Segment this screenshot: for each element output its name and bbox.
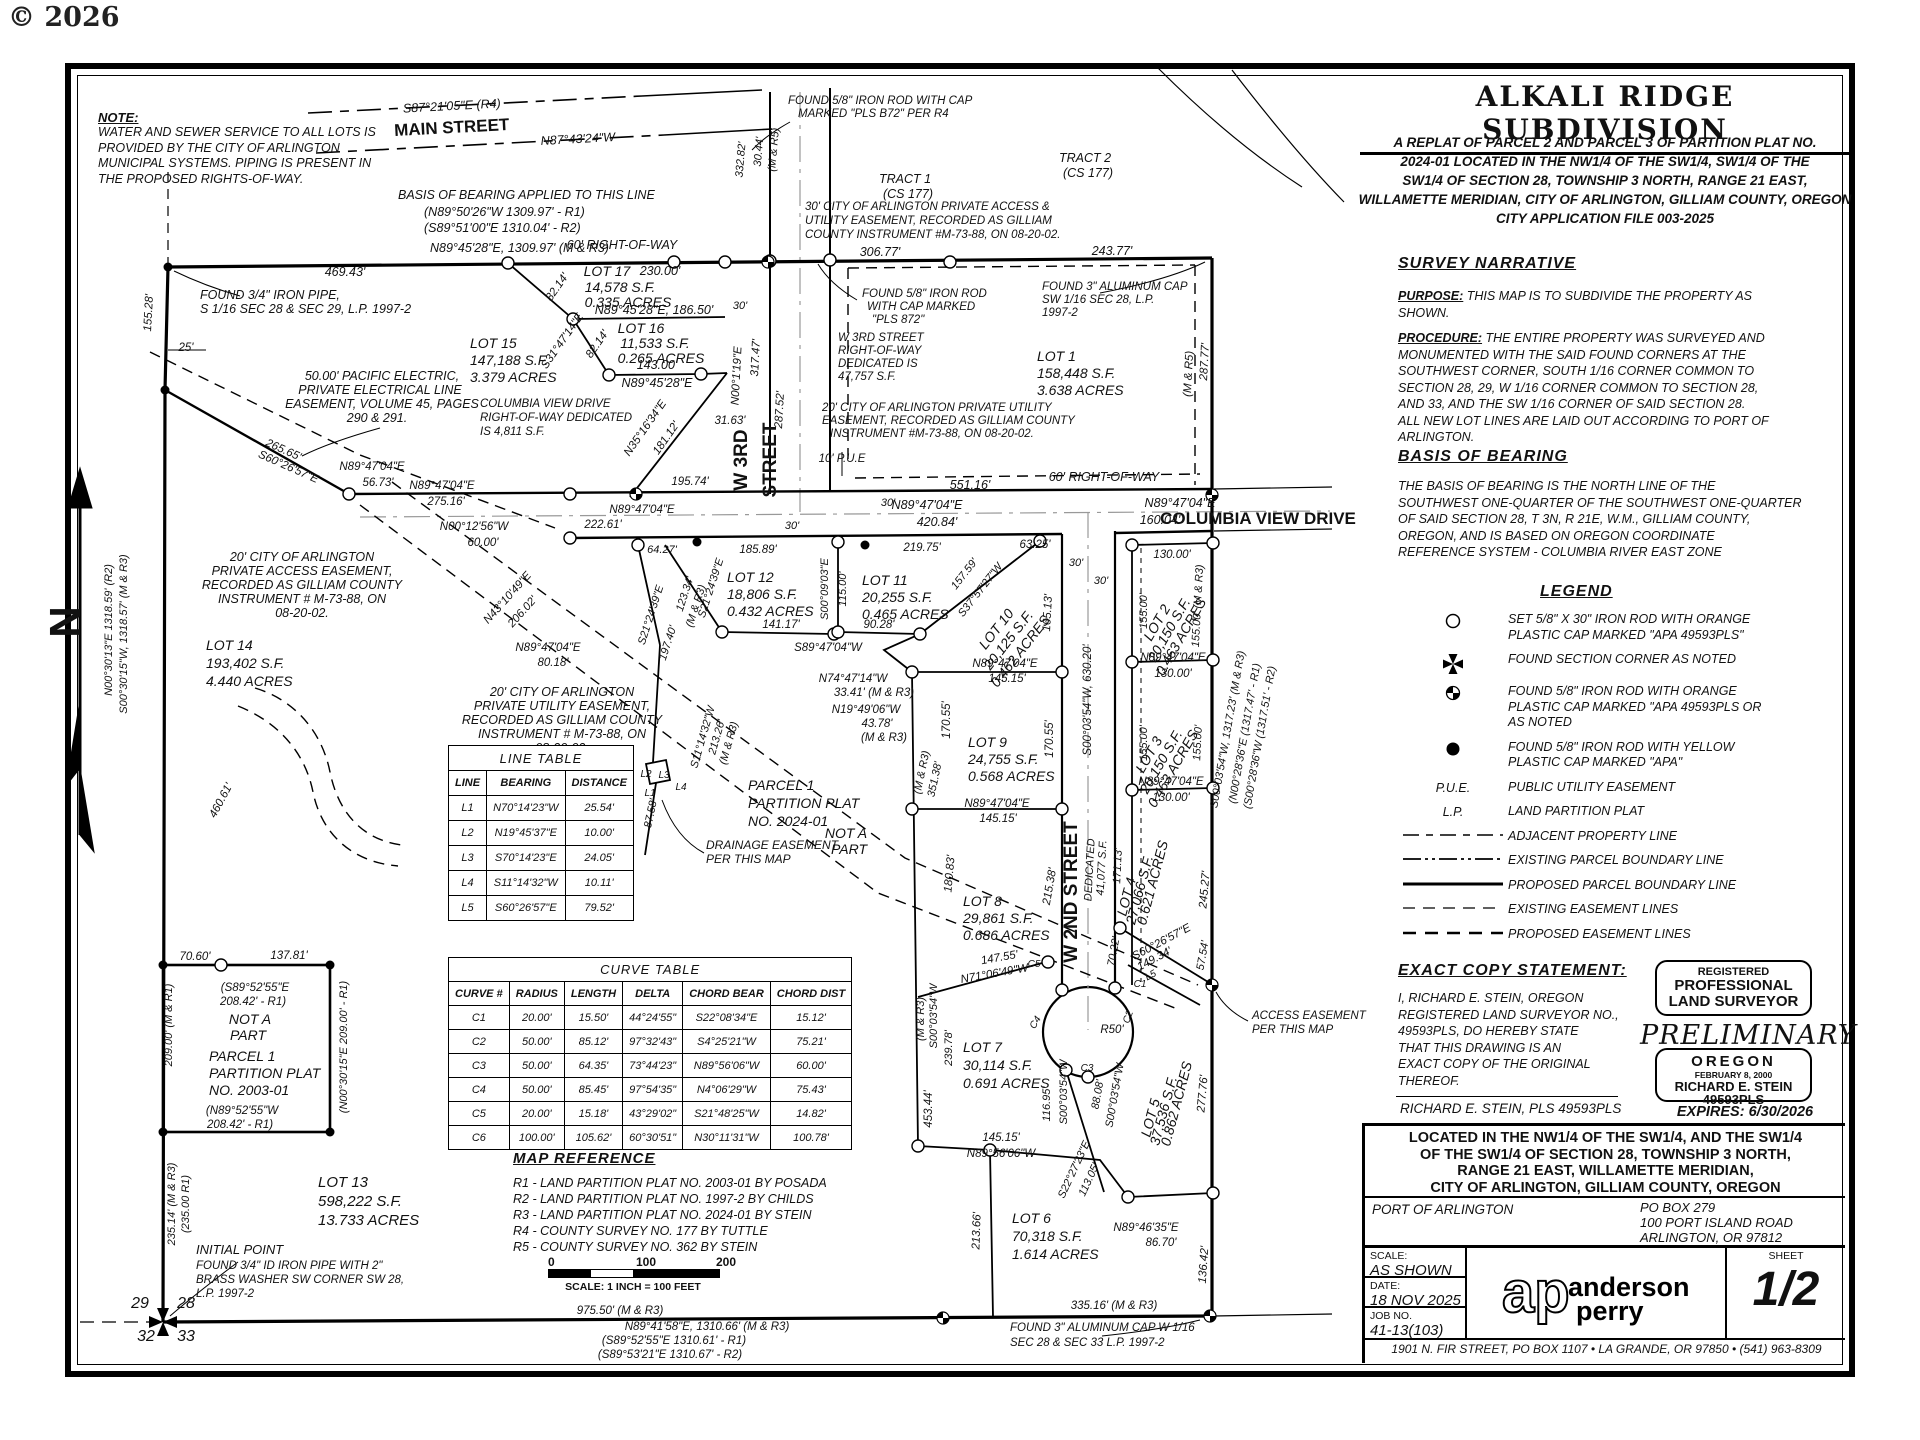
map-annotation: RECORDED AS GILLIAM COUNTY (462, 713, 664, 727)
map-annotation: 170.55' (941, 701, 953, 739)
table-title: CURVE TABLE (449, 958, 852, 982)
map-annotation: PRIVATE UTILITY EASEMENT, (474, 699, 650, 713)
map-annotation: 145.15' (982, 1132, 1020, 1144)
basis-of-bearing-paragraph: THE BASIS OF BEARING IS THE NORTH LINE O… (1398, 478, 1868, 561)
map-annotation: C2 (1121, 1009, 1136, 1025)
map-annotation: 30' (733, 300, 748, 312)
map-annotation: N89°47'04"E (1138, 776, 1204, 788)
map-annotation: COUNTY INSTRUMENT #M-73-88, ON 08-20-02. (805, 229, 1060, 241)
table-header: RADIUS (509, 982, 564, 1006)
procedure-label: PROCEDURE: (1398, 331, 1482, 345)
map-annotation: EASEMENT, VOLUME 45, PAGES (285, 397, 479, 411)
map-annotation: N89°56'06"W (967, 1148, 1037, 1160)
scale-bar-graphic (548, 1269, 720, 1278)
map-annotation: 08-20-02. (275, 606, 329, 620)
titleblock-client: PORT OF ARLINGTON (1372, 1202, 1513, 1217)
map-annotation: INSTRUMENT # M-73-88, ON (478, 727, 647, 741)
map-annotation: N89°47'04"E (892, 498, 964, 512)
map-annotation: S89°47'04"W (794, 642, 863, 654)
legend-item-found-rod-orange: FOUND 5/8" IRON ROD WITH ORANGE PLASTIC … (1398, 684, 1858, 731)
lot-17-label: LOT 17 (584, 263, 632, 279)
map-annotation: 332.82' (733, 141, 748, 179)
map-annotation: FOUND 3/4" ID IRON PIPE WITH 2" (196, 1260, 383, 1272)
lot-8-label: LOT 8 (963, 893, 1002, 909)
map-annotation: (CS 177) (1063, 166, 1113, 180)
map-annotation: 70.22' (1106, 935, 1123, 967)
map-annotation: S00°03'54"W, 630.20' (1082, 644, 1094, 756)
proposed-parcel-line-icon (1398, 878, 1508, 889)
map-annotation: NOT A (825, 825, 867, 841)
map-annotation: N74°47'14"W (819, 673, 889, 685)
map-annotation: S00°03'54"W (928, 982, 940, 1048)
map-annotation: INSTRUMENT #M-73-88, ON 08-20-02. (830, 428, 1034, 440)
map-reference-heading: MAP REFERENCE (513, 1150, 827, 1167)
map-annotation: PART (831, 841, 868, 857)
map-annotation: 0.432 ACRES (727, 603, 814, 619)
map-annotation: 14,578 S.F. (585, 279, 656, 295)
existing-easement-line-icon (1398, 902, 1508, 913)
map-annotation: 460.61' (207, 781, 236, 820)
map-annotation: (M & R3) (915, 997, 927, 1041)
titleblock-job: JOB NO. 41-13(103) (1370, 1310, 1443, 1339)
map-annotation: L2 (640, 769, 652, 780)
scale-100: 100 (636, 1255, 656, 1269)
map-annotation: N89°47'04"E (1140, 652, 1206, 664)
legend-item-lp: L.P. LAND PARTITION PLAT (1398, 804, 1858, 820)
map-reference-item: R4 - COUNTY SURVEY NO. 177 BY TUTTLE (513, 1223, 827, 1239)
map-annotation: UTILITY EASEMENT, RECORDED AS GILLIAM (805, 215, 1052, 227)
street-label-main: MAIN STREET (394, 115, 511, 140)
map-annotation: 136.42' (1197, 1245, 1212, 1284)
found-rod-yellow-icon (1398, 740, 1508, 757)
map-annotation: 20' CITY OF ARLINGTON (489, 685, 635, 699)
map-annotation: 0.691 ACRES (963, 1075, 1050, 1091)
map-annotation: 598,222 S.F. (318, 1193, 402, 1210)
map-annotation: 33 (177, 1328, 195, 1345)
map-annotation: 208.42' - R1) (206, 1119, 273, 1131)
adjacent-line-southeast (1214, 1314, 1332, 1316)
exact-copy-paragraph: I, RICHARD E. STEIN, OREGON REGISTERED L… (1398, 990, 1658, 1089)
firm-address: 1901 N. FIR STREET, PO BOX 1107 • LA GRA… (1368, 1342, 1845, 1356)
legend-item-existing-easement-line: EXISTING EASEMENT LINES (1398, 902, 1858, 918)
logo-ap-glyph: ap (1502, 1260, 1570, 1325)
map-reference: MAP REFERENCE R1 - LAND PARTITION PLAT N… (513, 1150, 827, 1255)
titleblock-border (1362, 1123, 1365, 1363)
map-annotation: (M & R5) (766, 127, 782, 172)
map-annotation: 29 (130, 1295, 149, 1312)
map-annotation: S87°21'05"E (R4) (402, 96, 501, 115)
map-annotation: IS 4,811 S.F. (480, 426, 545, 438)
map-reference-item: R2 - LAND PARTITION PLAT NO. 1997-2 BY C… (513, 1191, 827, 1207)
map-annotation: 420.84' (917, 515, 958, 529)
map-annotation: PARTITION PLAT (209, 1065, 322, 1081)
map-annotation: 116.95' (1041, 1086, 1053, 1122)
map-annotation: 235.14' (M & R3) (166, 1162, 178, 1246)
map-annotation: (CS 177) (883, 187, 933, 201)
table-header: DELTA (623, 982, 683, 1006)
legend-item-proposed-parcel-line: PROPOSED PARCEL BOUNDARY LINE (1398, 878, 1858, 894)
titleblock-location: LOCATED IN THE NW1/4 OF THE SW1/4, AND T… (1368, 1130, 1843, 1196)
map-annotation: 147,188 S.F. (470, 352, 548, 368)
map-annotation: 28 (176, 1295, 195, 1312)
map-annotation: (S89°53'21"E 1310.67' - R2) (598, 1349, 742, 1361)
map-annotation: N89°45'28"E (622, 376, 694, 390)
map-annotation: WITH CAP MARKED (867, 301, 975, 313)
map-annotation: 145.15' (988, 673, 1026, 685)
map-annotation: C3 (1081, 1063, 1094, 1074)
legend-heading: LEGEND (1540, 583, 1613, 601)
map-annotation: 29,861 S.F. (962, 910, 1034, 926)
columbia-view-drive-lines (165, 390, 1212, 538)
map-annotation: 30.44' (752, 136, 767, 167)
map-annotation: S00°09'03"E (819, 557, 831, 619)
map-annotation: RECORDED AS GILLIAM COUNTY (202, 578, 404, 592)
map-annotation: TRACT 2 (1059, 151, 1111, 165)
map-annotation: (N00°30'15"E 209.00' - R1) (338, 980, 350, 1113)
map-annotation: 239.78' (943, 1029, 955, 1067)
map-annotation: 57.54' (1195, 939, 1212, 971)
map-annotation: 155.00' (1138, 592, 1150, 629)
map-annotation: 10' P.U.E (819, 453, 866, 465)
map-annotation: NO. 2024-01 (748, 813, 828, 829)
map-annotation: 215.38' (1041, 866, 1060, 907)
map-annotation: RIGHT-OF-WAY (838, 345, 923, 357)
map-annotation: FOUND 3/4" IRON PIPE, (200, 288, 340, 302)
lot-12-label: LOT 12 (727, 569, 774, 585)
map-annotation: 30' (881, 497, 896, 509)
map-annotation: 209.00' (M & R1) (163, 983, 175, 1067)
map-annotation: 155.00' (1191, 724, 1205, 761)
lot-15-label: LOT 15 (470, 335, 517, 351)
map-annotation: 243.77' (1091, 244, 1133, 258)
map-annotation: 30' (785, 520, 800, 532)
procedure-paragraph: PROCEDURE: THE ENTIRE PROPERTY WAS SURVE… (1398, 330, 1868, 446)
map-annotation: FOUND 5/8" IRON ROD WITH CAP (788, 95, 973, 107)
map-annotation: FOUND 5/8" IRON ROD (862, 288, 987, 300)
map-annotation: S00°30'15"W, 1318.57' (M & R3) (118, 554, 130, 714)
lot-13-label: LOT 13 (318, 1174, 369, 1191)
table-header: CURVE # (449, 982, 510, 1006)
map-annotation: EASEMENT, RECORDED AS GILLIAM COUNTY (822, 415, 1076, 427)
map-annotation: BASIS OF BEARING APPLIED TO THIS LINE (398, 188, 655, 202)
table-row: L2N19°45'37"E10.00' (449, 821, 634, 846)
map-annotation: 230.00' (639, 264, 681, 278)
map-annotation: 82.14' (544, 270, 572, 303)
map-annotation: 165.13' (1041, 593, 1055, 632)
map-annotation: 82.14' (584, 327, 612, 360)
anderson-perry-logo: ap anderson perry (1490, 1258, 1720, 1330)
legend-item-existing-parcel-line: EXISTING PARCEL BOUNDARY LINE (1398, 853, 1858, 869)
map-annotation: 18,806 S.F. (727, 586, 798, 602)
map-annotation: 130.00' (1152, 792, 1190, 804)
map-annotation: N89°47'04"E (972, 658, 1038, 670)
map-annotation: 64.27' (647, 544, 678, 556)
map-annotation: 25' (178, 342, 195, 354)
map-annotation: 219.75' (902, 542, 941, 554)
map-annotation: (N89°50'26"W 1309.97' - R1) (424, 205, 585, 219)
main-street-edge (642, 90, 772, 135)
titleblock-client-address: PO BOX 279 100 PORT ISLAND ROAD ARLINGTO… (1640, 1200, 1793, 1245)
map-annotation: 24,755 S.F. (967, 751, 1039, 767)
map-annotation: 222.61' (583, 519, 622, 531)
map-annotation: 137.81' (270, 950, 308, 962)
map-annotation: 143.00' (637, 358, 678, 372)
map-annotation: 275.16' (426, 496, 465, 508)
legend-item-set-rod: SET 5/8" X 30" IRON ROD WITH ORANGE PLAS… (1398, 612, 1858, 643)
titleblock-date: DATE: 18 NOV 2025 (1370, 1280, 1461, 1309)
basis-of-bearing-heading: BASIS OF BEARING (1398, 448, 1568, 466)
lot-1-label: LOT 1 (1037, 348, 1076, 364)
map-annotation: C4 (1028, 1014, 1044, 1031)
map-annotation: 30' CITY OF ARLINGTON PRIVATE ACCESS & (805, 201, 1050, 213)
map-annotation: DRAINAGE EASEMENT (706, 838, 840, 852)
section-corner-icon (1398, 652, 1508, 675)
water-sewer-note: NOTE: WATER AND SEWER SERVICE TO ALL LOT… (98, 110, 398, 187)
parcel-1-2003-label: PARCEL 1 (209, 1048, 275, 1064)
map-annotation: 975.50' (M & R3) (577, 1305, 664, 1317)
map-annotation: 0.465 ACRES (862, 606, 949, 622)
table-row: L4S11°14'32"W10.11' (449, 871, 634, 896)
map-annotation: 47,757 S.F. (838, 371, 896, 383)
map-annotation: N89°41'58"E, 1310.66' (M & R3) (625, 1321, 790, 1333)
legend-item-proposed-easement-line: PROPOSED EASEMENT LINES (1398, 927, 1858, 943)
map-annotation: C1 (1134, 979, 1147, 990)
adjacent-line-icon (1398, 829, 1508, 840)
exact-copy-heading: EXACT COPY STATEMENT: (1398, 962, 1627, 980)
signature-line (1396, 1096, 1618, 1097)
map-annotation: 208.42' - R1) (219, 996, 286, 1008)
titleblock-border (1362, 1123, 1845, 1126)
context-road-curves (1158, 68, 1344, 202)
map-annotation: 33.41' (M & R3) (834, 687, 914, 699)
map-annotation: (S89°51'00"E 1310.04' - R2) (424, 221, 581, 235)
map-annotation: (M & R3) (861, 732, 907, 744)
surveyor-stamp-header: REGISTERED PROFESSIONAL LAND SURVEYOR (1655, 960, 1812, 1016)
map-annotation: 180.83' (942, 854, 957, 893)
map-annotation: N89°47'04"E (409, 480, 475, 492)
map-annotation: PARTITION PLAT (748, 795, 861, 811)
map-annotation: 0.686 ACRES (963, 927, 1050, 943)
map-annotation: 41,077 S.F. (1095, 840, 1110, 896)
purpose-label: PURPOSE: (1398, 289, 1463, 303)
map-annotation: MARKED "PLS B72" PER R4 (798, 108, 949, 120)
map-annotation: 63.25' (1020, 539, 1052, 551)
map-annotation: 88.08' (1090, 1078, 1107, 1110)
map-annotation: 287.77' (1198, 342, 1212, 382)
map-annotation: N19°49'06"W (832, 704, 902, 716)
table-header: DISTANCE (565, 771, 633, 796)
map-annotation: SW 1/16 SEC 28, L.P. (1042, 294, 1154, 306)
table-row: C350.00'64.35'73°44'23"N89°56'06"W60.00' (449, 1054, 852, 1078)
map-annotation: 30' (1069, 557, 1084, 569)
map-annotation: 80.18' (538, 657, 570, 669)
map-annotation: N00°1'19"E (729, 346, 744, 406)
table-header: BEARING (487, 771, 565, 796)
map-annotation: C5 (1028, 959, 1041, 970)
street-label-w2nd: W 2ND STREET (1061, 821, 1082, 963)
map-annotation: 13.733 ACRES (318, 1212, 419, 1229)
table-row: C250.00'85.12'97°32'43"S4°25'21"W75.21' (449, 1030, 852, 1054)
lot-9-label: LOT 9 (968, 734, 1007, 750)
map-annotation: 20' CITY OF ARLINGTON (229, 550, 375, 564)
map-annotation: S00°03'54"W (1104, 1061, 1127, 1129)
table-title: LINE TABLE (449, 746, 634, 771)
map-annotation: SEC 28 & SEC 33 L.P. 1997-2 (1010, 1337, 1165, 1349)
map-annotation: TRACT 1 (879, 172, 931, 186)
map-annotation: L.P. 1997-2 (196, 1288, 255, 1300)
map-annotation: N00°30'13"E 1318.59' (R2) (103, 564, 115, 696)
note-text: WATER AND SEWER SERVICE TO ALL LOTS IS P… (98, 125, 398, 187)
preliminary-mark: PRELIMINARY (1640, 1020, 1840, 1051)
map-annotation: "PLS 872" (872, 314, 925, 326)
map-annotation: 335.16' (M & R3) (1071, 1300, 1158, 1312)
map-annotation: (S89°52'55"E 1310.61' - R1) (602, 1335, 746, 1347)
map-annotation: 60.00' (468, 537, 500, 549)
map-annotation: PER THIS MAP (1252, 1024, 1333, 1036)
map-annotation: 453.44' (923, 1090, 935, 1128)
plat-sheet: © 2026 (0, 0, 1920, 1440)
map-annotation: 551.16' (950, 478, 991, 492)
survey-narrative-heading: SURVEY NARRATIVE (1398, 255, 1576, 273)
map-annotation: 130.00' (1153, 549, 1191, 561)
titleblock-scale: SCALE: AS SHOWN (1370, 1250, 1452, 1279)
map-annotation: N89°46'35"E (1113, 1222, 1179, 1234)
street-label-w3rd: W 3RD (731, 429, 752, 490)
map-annotation: N89°47'04"E (964, 798, 1030, 810)
map-annotation: 1997-2 (1042, 307, 1078, 319)
table-header: LENGTH (564, 982, 622, 1006)
map-annotation: RIGHT-OF-WAY DEDICATED (480, 412, 632, 424)
map-annotation: (S89°52'55"E (221, 982, 290, 994)
legend-item-adjacent-line: ADJACENT PROPERTY LINE (1398, 829, 1858, 845)
map-annotation: 290 & 291. (346, 411, 407, 425)
table-row: L1N70°14'23"W25.54' (449, 796, 634, 821)
lot-7-label: LOT 7 (963, 1039, 1003, 1055)
map-annotation: 3.638 ACRES (1037, 382, 1124, 398)
map-annotation: 20' CITY OF ARLINGTON PRIVATE UTILITY (821, 402, 1053, 414)
signature-name: RICHARD E. STEIN, PLS 49593PLS (1400, 1101, 1621, 1116)
map-annotation: 32 (137, 1328, 155, 1345)
map-annotation: S21°24'39"E (636, 583, 667, 646)
surveyor-stamp-body: OREGON FEBRUARY 8, 2000 RICHARD E. STEIN… (1655, 1048, 1812, 1102)
lot-6-label: LOT 6 (1012, 1210, 1051, 1226)
map-annotation: 60' RIGHT-OF-WAY (1049, 470, 1161, 484)
map-annotation: 155.00' (M & R3) (1190, 564, 1206, 648)
lot-11-label: LOT 11 (862, 572, 908, 588)
table-row: C120.00'15.50'44°24'55"S22°08'34"E15.12' (449, 1006, 852, 1030)
map-annotation: 158,448 S.F. (1037, 365, 1115, 381)
map-annotation: 195.74' (671, 476, 709, 488)
map-annotation: 30' (1094, 575, 1109, 587)
table-header: CHORD DIST (770, 982, 851, 1006)
map-reference-item: R1 - LAND PARTITION PLAT NO. 2003-01 BY … (513, 1175, 827, 1191)
map-annotation: 43.78' (862, 718, 894, 730)
note-label: NOTE: (98, 110, 398, 125)
map-annotation: 245.27' (1197, 870, 1212, 910)
map-annotation: PER THIS MAP (706, 852, 791, 866)
existing-parcel-line-icon (1398, 853, 1508, 864)
map-annotation: 306.77' (860, 245, 901, 259)
map-annotation: 56.73' (363, 477, 395, 489)
map-annotation: PART (230, 1027, 267, 1043)
map-annotation: L1 (644, 788, 655, 799)
map-annotation: N89°47'04"E (339, 461, 405, 473)
map-annotation: R50' (1100, 1024, 1124, 1036)
map-annotation: ACCESS EASEMENT (1251, 1010, 1367, 1022)
map-annotation: PRIVATE ELECTRICAL LINE (298, 383, 462, 397)
map-annotation: INSTRUMENT # M-73-88, ON (218, 592, 387, 606)
map-annotation: 70.60' (180, 951, 212, 963)
found-rod-orange-icon (1398, 684, 1508, 701)
scale-0: 0 (548, 1255, 555, 1269)
legend: SET 5/8" X 30" IRON ROD WITH ORANGE PLAS… (1398, 612, 1858, 951)
north-arrow-icon (66, 468, 94, 852)
map-annotation: COLUMBIA VIEW DRIVE (480, 398, 611, 410)
map-annotation: 30,114 S.F. (963, 1057, 1033, 1073)
map-annotation: 277.76' (1195, 1074, 1210, 1114)
map-annotation: STREET (760, 422, 781, 497)
map-annotation: 170.55' (1044, 720, 1056, 758)
map-annotation: NOT A (229, 1011, 271, 1027)
map-annotation: 31.63' (715, 415, 747, 427)
map-annotation: 60' RIGHT-OF-WAY (567, 238, 679, 252)
map-annotation: 141.17' (762, 619, 800, 631)
legend-item-found-rod-yellow: FOUND 5/8" IRON ROD WITH YELLOW PLASTIC … (1398, 740, 1858, 771)
map-annotation: 193,402 S.F. (206, 655, 284, 671)
sheet-number: 1/2 (1730, 1262, 1842, 1317)
map-annotation: PRIVATE ACCESS EASEMENT, (212, 564, 393, 578)
map-annotation: 213.66' (970, 1211, 983, 1251)
map-annotation: BRASS WASHER SW CORNER SW 28, (196, 1274, 404, 1286)
parcel-1-2024-label: PARCEL 1 (748, 777, 814, 793)
map-annotation: (N89°52'55"W (206, 1105, 279, 1117)
map-annotation: NO. 2003-01 (209, 1082, 289, 1098)
line-table: LINE TABLELINEBEARINGDISTANCEL1N70°14'23… (448, 745, 634, 921)
stamp-expiry: EXPIRES: 6/30/2026 (1660, 1104, 1830, 1120)
table-row: L3S70°14'23"E24.05' (449, 846, 634, 871)
map-reference-item: R3 - LAND PARTITION PLAT NO. 2024-01 BY … (513, 1207, 827, 1223)
map-annotation: (235.00 R1) (180, 1175, 192, 1233)
logo-perry: perry (1576, 1296, 1644, 1326)
map-annotation: 145.15' (979, 813, 1017, 825)
table-row: C6100.00'105.62'60°30'51"N30°11'31"W100.… (449, 1126, 852, 1150)
map-annotation: N71°06'49"W (960, 962, 1031, 986)
map-annotation: 155.28' (142, 293, 156, 332)
legend-item-pue: P.U.E. PUBLIC UTILITY EASEMENT (1398, 780, 1858, 796)
map-reference-item: R5 - COUNTY SURVEY NO. 362 BY STEIN (513, 1239, 827, 1255)
map-annotation: L3 (658, 770, 670, 781)
scale-caption: SCALE: 1 INCH = 100 FEET (548, 1281, 718, 1293)
table-row: L5S60°26'57"E79.52' (449, 896, 634, 921)
map-annotation: 0.568 ACRES (968, 768, 1055, 784)
map-annotation: S 1/16 SEC 28 & SEC 29, L.P. 1997-2 (200, 302, 411, 316)
map-annotation: 130.00' (1154, 668, 1192, 680)
map-annotation: 20,255 S.F. (861, 589, 933, 605)
map-annotation: 87.58' (642, 797, 660, 829)
map-annotation: N89°45'28"E, 186.50' (595, 303, 714, 317)
table-header: CHORD BEAR (683, 982, 771, 1006)
map-annotation: 1.614 ACRES (1012, 1246, 1099, 1262)
map-annotation: 3.379 ACRES (470, 369, 557, 385)
curve-table: CURVE TABLECURVE #RADIUSLENGTHDELTACHORD… (448, 957, 852, 1150)
map-annotation: FOUND 3" ALUMINUM CAP (1042, 281, 1188, 293)
set-iron-rod-icon (1398, 612, 1508, 629)
map-annotation: L4 (675, 782, 687, 793)
plat-subtitle: A REPLAT OF PARCEL 2 AND PARCEL 3 OF PAR… (1352, 133, 1858, 228)
map-annotation: 469.43' (325, 265, 366, 279)
table-row: C520.00'15.18'43°29'02"S21°48'25"W14.82' (449, 1102, 852, 1126)
map-annotation: INITIAL POINT (196, 1242, 284, 1257)
